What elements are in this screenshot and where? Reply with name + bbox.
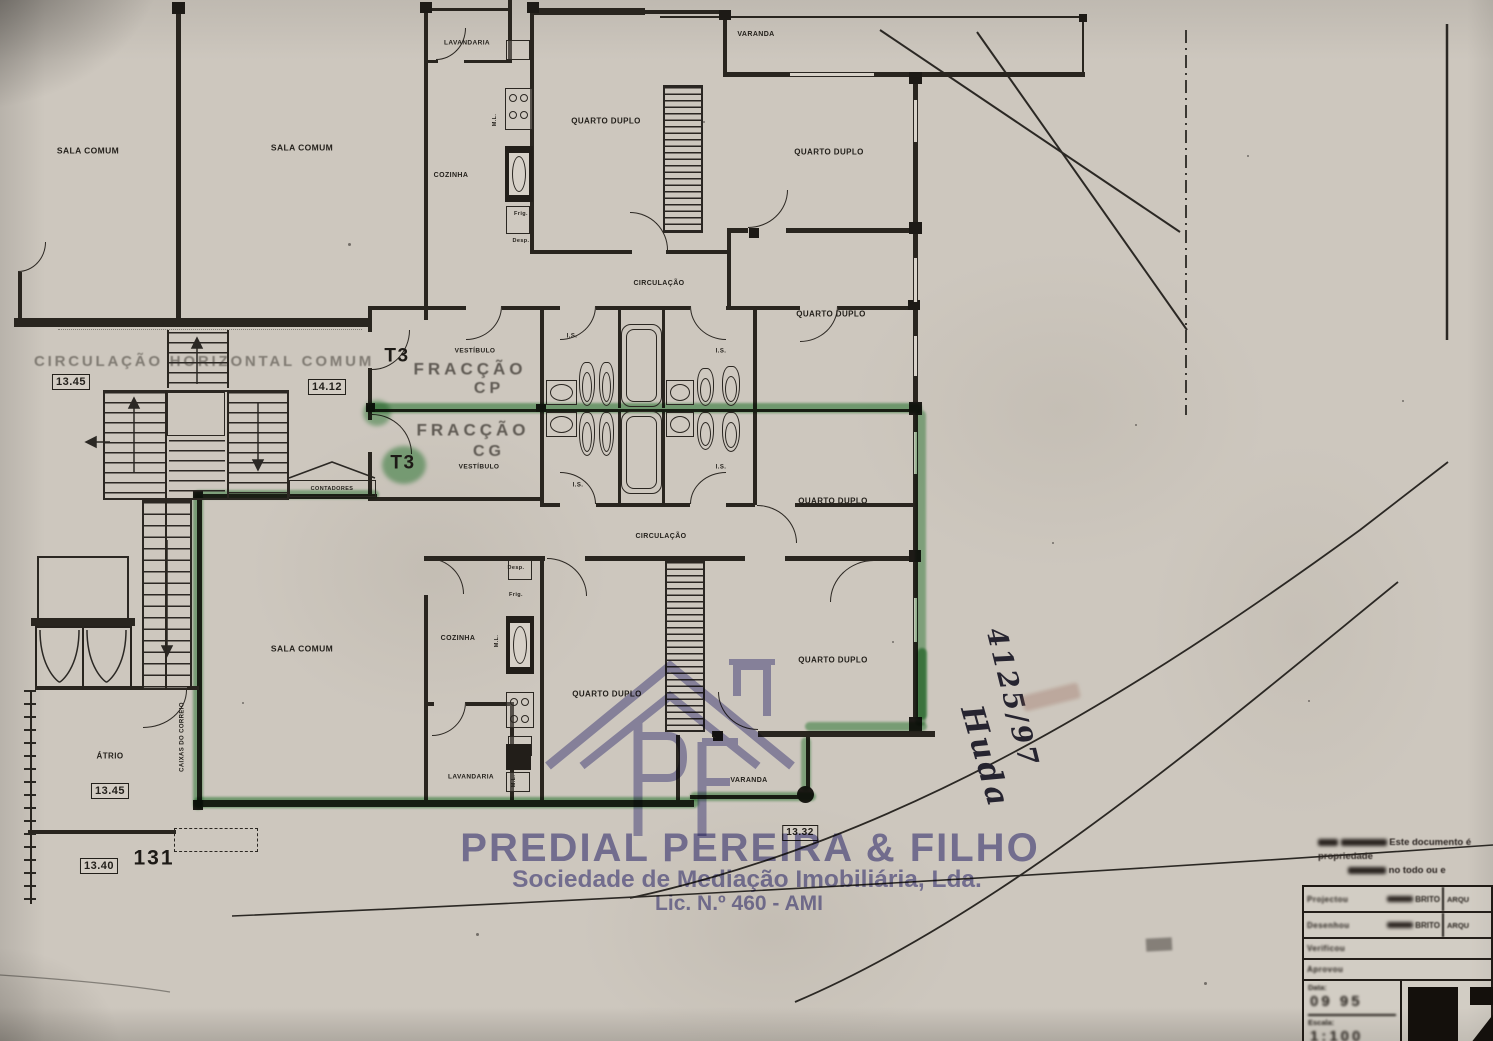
toilet [697,412,714,450]
wall [424,8,512,11]
wall [785,556,917,561]
room-label-atrio: ÁTRIO [97,753,124,762]
toilet [722,366,740,406]
fraccao-label-cp: FRACÇÃO [414,361,527,380]
fixture [506,40,530,60]
toilet [579,362,595,406]
wall [464,60,512,63]
stair-landing [167,392,225,436]
frig-label-cp: Frig. [514,211,528,217]
vestibulo-label-cg: VESTÍBULO [459,463,500,470]
window [790,72,874,77]
appliance [506,744,531,770]
room-label-varanda-cp: VARANDA [737,31,774,39]
road-curve [0,975,170,992]
contadores-canopy [289,462,375,478]
toilet [722,412,740,452]
wall [786,228,917,233]
room-label-sala-comum-3: SALA COMUM [271,644,333,653]
washbasin [666,380,694,405]
caixas-correio-label: CAIXAS DO CORREIO [180,702,187,772]
room-label-circulacao-cp: CIRCULAÇÃO [633,280,684,288]
room-label-quarto-duplo-4: QUARTO DUPLO [572,691,642,700]
wardrobe [663,85,703,233]
wall [723,12,727,74]
washbasin [546,412,577,437]
wall [18,272,22,320]
wall [533,8,645,15]
title-row: Desenhou BRITO ARQU [1304,913,1491,939]
green-highlight [363,400,391,426]
ink-smear [1146,937,1173,951]
wall [540,503,560,507]
room-label-quarto-duplo-1: QUARTO DUPLO [571,118,641,127]
wall [540,412,544,505]
notice-line2: no todo ou e [1389,865,1446,876]
wall [726,503,755,507]
frig-label-cg: Frig. [509,592,523,598]
structural-column [1079,14,1087,22]
wall [662,306,665,408]
wall [1082,16,1084,74]
wall [753,412,757,505]
ml-label-3: M.L. [511,775,517,788]
wall [596,306,690,310]
is-label-4: I.S. [716,465,727,472]
wall [676,735,680,800]
level-13-45-box: 13.45 [52,374,90,390]
is-label-2: I.S. [716,349,727,356]
elevator-shaft [37,556,129,622]
window [913,258,918,302]
room-label-varanda-cg: VARANDA [730,777,767,785]
wall [424,8,428,320]
data-value: 09 95 [1310,993,1396,1010]
wall [368,306,466,310]
wall [533,250,632,254]
scanned-floor-plan: SALA COMUMSALA COMUMLAVANDARIACOZINHAQUA… [0,0,1493,1041]
structural-column [420,2,432,13]
wall [424,60,438,63]
wall [726,306,800,310]
structural-column [909,72,922,84]
room-label-quarto-duplo-2: QUARTO DUPLO [794,149,864,158]
wall [14,318,370,327]
is-label-1: I.S. [567,334,578,341]
title-block: Este documento é propriedade no todo ou … [1300,836,1493,1041]
contadores-cabinet [289,480,376,497]
wall [758,731,935,737]
desp-label-cp: Desp. [513,238,530,244]
wall [727,233,731,308]
desp-label-cg: Desp. [508,565,525,571]
level-13-32-box: 13.32 [782,825,818,841]
wardrobe [665,560,705,732]
wall [666,250,727,254]
toilet [599,412,614,456]
wall [727,228,748,233]
t3-label-cp: T3 [384,347,409,368]
room-label-cozinha-cg: COZINHA [441,635,476,643]
structural-column [172,2,185,14]
wall [723,72,1085,77]
title-data-scale: Data: 09 95 Escala: 1:100 [1304,981,1402,1041]
stove-hob [506,692,534,728]
room-label-quarto-duplo-3: QUARTO DUPLO [796,311,866,320]
micro-dimension-text [58,329,362,330]
washbasin [666,412,694,437]
fraccao-label-cg: FRACÇÃO [417,422,530,441]
structural-column [527,2,539,13]
stove-hob [505,88,533,130]
level-13-40-box: 13.40 [80,858,118,874]
stair-upper-flight [169,332,227,388]
road-diagonal-line [880,30,1180,232]
green-highlight [193,494,203,810]
title-table: Projectou BRITO ARQU Desenhou BRITO ARQU… [1302,885,1493,1041]
structural-column [719,10,731,20]
architect-logo [1402,981,1491,1041]
fixture [506,772,530,792]
wall [753,306,757,410]
level-13-45-box-2: 13.45 [91,783,129,799]
green-highlight [690,792,816,801]
site-lines-layer [0,0,1493,1041]
wall [176,6,181,320]
wall [540,306,544,408]
room-label-circulacao-cg: CIRCULAÇÃO [635,533,686,541]
road-curve [630,462,1448,898]
room-label-cozinha-cp: COZINHA [434,172,469,180]
toilet [579,412,595,456]
wall [502,306,560,310]
title-row: Verificou [1304,939,1491,960]
is-label-3: I.S. [573,483,584,490]
scale-label: Escala: [1308,1014,1396,1027]
bathtub [621,411,662,494]
window [913,336,918,376]
room-label-sala-comum-1: SALA COMUM [57,146,119,155]
toilet [599,362,614,406]
ml-label-2: M.L. [494,635,500,648]
green-highlight [917,648,927,720]
level-14-12-box: 14.12 [308,379,346,395]
structural-column [749,228,759,238]
vestibulo-label-cp: VESTÍBULO [455,347,496,354]
t3-label-cg: T3 [390,454,415,475]
room-label-quarto-duplo-5: QUARTO DUPLO [798,498,868,507]
data-label: Data: [1308,983,1396,992]
fraccao-code-cp: CP [474,380,504,398]
wall [424,595,428,805]
wall [596,503,690,507]
wall [645,10,727,14]
window [913,100,918,142]
room-label-quarto-duplo-6: QUARTO DUPLO [798,657,868,666]
kitchen-sink [505,146,533,202]
title-row: Aprovou [1304,960,1491,981]
green-highlight [805,722,927,731]
structural-column [909,222,922,234]
kitchen-sink [506,616,534,674]
green-highlight [801,737,811,791]
structural-column [713,731,723,741]
wall [530,8,534,254]
washbasin [546,380,577,405]
room-label-lavandaria-cp: LAVANDARIA [444,39,490,46]
green-highlight [194,797,699,808]
dashed-extension [174,828,258,852]
bathtub [621,324,662,407]
wall [368,497,540,501]
toilet [697,368,714,406]
ml-label-1: M.L. [492,114,498,127]
wall [662,412,665,505]
room-label-sala-comum-2: SALA COMUM [271,143,333,152]
wall [540,560,544,805]
title-row: Projectou BRITO ARQU [1304,887,1491,913]
street-number-131: 131 [133,846,174,869]
scale-value: 1:100 [1310,1028,1396,1041]
room-label-lavandaria-cg: LAVANDARIA [448,773,494,780]
copyright-notice: Este documento é propriedade no todo ou … [1300,836,1493,878]
fraccao-code-cg: CG [473,443,505,461]
